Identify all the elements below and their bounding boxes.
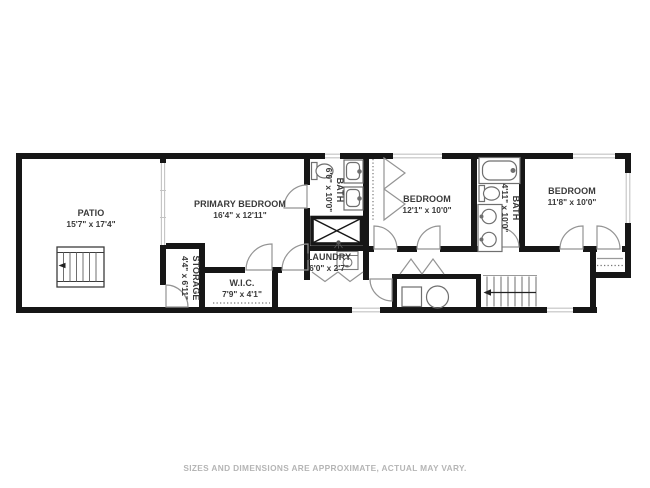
patio-stairs-icon bbox=[57, 247, 104, 287]
water-heater-icon bbox=[427, 286, 449, 308]
room-name: BATH bbox=[510, 196, 521, 221]
room-name: PATIO bbox=[78, 208, 105, 219]
room-label-wic: W.I.C. 7'9" x 4'1" bbox=[222, 278, 262, 300]
bathtub-icon bbox=[479, 158, 520, 184]
shower bbox=[312, 218, 362, 249]
room-dims: 16'4" x 12'11" bbox=[213, 210, 266, 221]
window-icon bbox=[547, 307, 573, 313]
room-label-primary-bedroom: PRIMARY BEDROOM 16'4" x 12'11" bbox=[194, 199, 286, 221]
sliding-door-icon bbox=[160, 163, 166, 245]
room-label-bath-2: BATH 4'11" x 10'0" bbox=[499, 184, 521, 233]
room-label-patio: PATIO 15'7" x 17'4" bbox=[66, 208, 115, 230]
room-dims: 11'8" x 10'0" bbox=[548, 197, 597, 208]
furnace-icon bbox=[402, 287, 422, 307]
room-name: BEDROOM bbox=[403, 194, 451, 205]
window-icon bbox=[573, 153, 615, 159]
sink-icon bbox=[344, 160, 363, 183]
utility-fixtures bbox=[402, 286, 449, 308]
room-name: STORAGE bbox=[190, 255, 201, 300]
room-dims: 7'9" x 4'1" bbox=[222, 289, 262, 300]
room-name: BATH bbox=[334, 178, 345, 203]
sink-icon bbox=[344, 187, 363, 210]
room-dims: 4'11" x 10'0" bbox=[499, 184, 510, 233]
window-icon bbox=[352, 307, 380, 313]
bifold-door-icon bbox=[400, 259, 444, 274]
room-name: LAUNDRY bbox=[307, 252, 351, 263]
disclaimer-text: SIZES AND DIMENSIONS ARE APPROXIMATE, AC… bbox=[0, 463, 650, 473]
room-label-laundry: LAUNDRY 6'0" x 2'7" bbox=[307, 252, 351, 274]
room-name: PRIMARY BEDROOM bbox=[194, 199, 286, 210]
window-icon bbox=[393, 153, 442, 159]
stairs-icon bbox=[483, 276, 537, 307]
room-dims: 15'7" x 17'4" bbox=[66, 219, 115, 230]
door-arc-icon bbox=[246, 244, 272, 270]
door-arc-icon bbox=[284, 185, 307, 208]
floor-plan-drawing bbox=[0, 0, 650, 488]
room-dims: 6'0" x 2'7" bbox=[309, 263, 349, 274]
door-arc-icon bbox=[374, 226, 397, 249]
room-dims: 12'1" x 10'0" bbox=[402, 205, 451, 216]
room-dims: 6'0" x 10'0" bbox=[323, 168, 334, 213]
room-dims: 4'4" x 6'11" bbox=[179, 256, 190, 300]
room-label-bedroom-3: BEDROOM 11'8" x 10'0" bbox=[548, 186, 597, 208]
door-arc-icon bbox=[417, 226, 440, 249]
room-label-storage: STORAGE 4'4" x 6'11" bbox=[179, 255, 201, 300]
floor-plan-page: PATIO 15'7" x 17'4" PRIMARY BEDROOM 16'4… bbox=[0, 0, 650, 488]
door-arc-icon bbox=[597, 226, 620, 249]
window-icon bbox=[325, 153, 340, 159]
room-label-bedroom-2: BEDROOM 12'1" x 10'0" bbox=[402, 194, 451, 216]
room-label-primary-bath: BATH 6'0" x 10'0" bbox=[323, 168, 345, 213]
room-name: W.I.C. bbox=[229, 278, 254, 289]
room-name: BEDROOM bbox=[548, 186, 596, 197]
door-arc-icon bbox=[560, 226, 583, 249]
window-icon bbox=[625, 173, 631, 223]
door-arc-icon bbox=[370, 279, 392, 301]
toilet-icon bbox=[479, 186, 500, 202]
